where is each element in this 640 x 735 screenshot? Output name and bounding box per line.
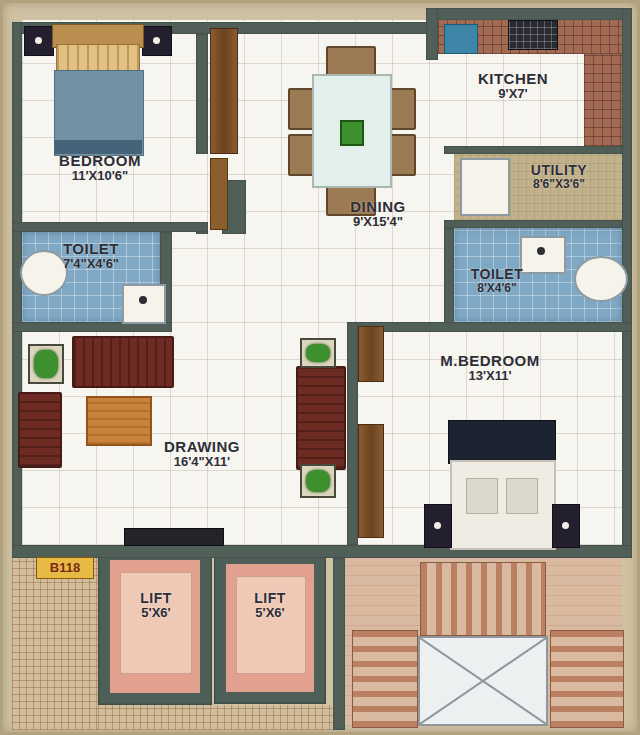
bed-pillow bbox=[506, 478, 538, 514]
floor-plan: BEDROOM 11'X10'6" TOILET 7'4"X4'6" DININ… bbox=[0, 0, 640, 735]
wall bbox=[333, 558, 345, 730]
room-dims: 8'X4'6" bbox=[452, 282, 542, 296]
kitchen-sink bbox=[444, 24, 478, 54]
wall bbox=[426, 8, 438, 60]
toilet1-washbasin bbox=[122, 284, 166, 324]
stair-flight-right bbox=[550, 630, 624, 728]
basin-drain bbox=[537, 247, 545, 255]
room-name: DRAWING bbox=[132, 438, 272, 455]
room-dims: 7'4"X4'6" bbox=[32, 257, 150, 272]
wall bbox=[444, 220, 622, 228]
room-dims: 5'X6' bbox=[230, 606, 310, 621]
room-label-bedroom: BEDROOM 11'X10'6" bbox=[30, 152, 170, 184]
sofa bbox=[296, 366, 346, 470]
wall bbox=[12, 222, 208, 232]
nightstand bbox=[24, 26, 54, 56]
stair-landing-cross-icon bbox=[420, 638, 546, 724]
wardrobe bbox=[358, 326, 384, 382]
room-label-kitchen: KITCHEN 9'X7' bbox=[438, 70, 588, 102]
room-dims: 13'X11' bbox=[402, 369, 578, 384]
lift1-inner bbox=[120, 572, 192, 674]
potted-plant bbox=[300, 464, 336, 498]
room-dims: 8'6"X3'6" bbox=[498, 178, 620, 192]
room-label-dining: DINING 9'X15'4" bbox=[318, 198, 438, 230]
corridor-hatch-bottom bbox=[98, 705, 333, 730]
room-name: BEDROOM bbox=[30, 152, 170, 169]
wall bbox=[430, 8, 632, 20]
room-name: DINING bbox=[318, 198, 438, 215]
room-label-mbedroom: M.BEDROOM 13'X11' bbox=[402, 352, 578, 384]
table-centerpiece bbox=[340, 120, 364, 146]
wall bbox=[347, 322, 358, 545]
room-name: UTILITY bbox=[498, 162, 620, 178]
room-label-lift2: LIFT 5'X6' bbox=[230, 590, 310, 621]
potted-plant bbox=[300, 338, 336, 368]
door-leaf bbox=[210, 158, 228, 230]
wall bbox=[352, 322, 632, 332]
wall bbox=[12, 22, 22, 558]
room-dims: 11'X10'6" bbox=[30, 169, 170, 184]
wall bbox=[196, 34, 208, 154]
room-dims: 16'4"X11' bbox=[132, 455, 272, 470]
room-label-drawing: DRAWING 16'4"X11' bbox=[132, 438, 272, 470]
room-label-utility: UTILITY 8'6"X3'6" bbox=[498, 162, 620, 192]
wardrobe bbox=[358, 424, 384, 538]
room-label-toilet1: TOILET 7'4"X4'6" bbox=[32, 240, 150, 272]
room-name: M.BEDROOM bbox=[402, 352, 578, 369]
room-name: TOILET bbox=[452, 266, 542, 282]
room-name: TOILET bbox=[32, 240, 150, 257]
wardrobe bbox=[210, 28, 238, 154]
room-label-lift1: LIFT 5'X6' bbox=[116, 590, 196, 621]
basin-drain bbox=[139, 296, 147, 304]
nightstand bbox=[552, 504, 580, 548]
stair-flight-left bbox=[352, 630, 418, 728]
nightstand bbox=[424, 504, 452, 548]
sofa bbox=[72, 336, 174, 388]
tv-unit bbox=[124, 528, 224, 546]
room-dims: 9'X7' bbox=[438, 87, 588, 102]
sofa bbox=[18, 392, 62, 468]
room-dims: 9'X15'4" bbox=[318, 215, 438, 230]
bed-pillow bbox=[466, 478, 498, 514]
stair-landing bbox=[418, 636, 548, 726]
unit-number-badge: B118 bbox=[36, 557, 94, 579]
stair-flight-top bbox=[420, 562, 546, 636]
room-dims: 5'X6' bbox=[116, 606, 196, 621]
room-label-toilet2: TOILET 8'X4'6" bbox=[452, 266, 542, 296]
kitchen-counter-right bbox=[584, 54, 622, 146]
dining-chair bbox=[388, 134, 416, 176]
master-bed-headboard bbox=[448, 420, 556, 464]
bed-pillows bbox=[56, 44, 140, 72]
potted-plant bbox=[28, 344, 64, 384]
toilet2-wc bbox=[574, 256, 628, 302]
stove bbox=[508, 20, 558, 50]
room-name: KITCHEN bbox=[438, 70, 588, 87]
room-name: LIFT bbox=[116, 590, 196, 606]
wall bbox=[444, 146, 622, 154]
room-name: LIFT bbox=[230, 590, 310, 606]
corridor-hatch-left bbox=[12, 558, 98, 730]
dining-chair bbox=[388, 88, 416, 130]
nightstand bbox=[142, 26, 172, 56]
